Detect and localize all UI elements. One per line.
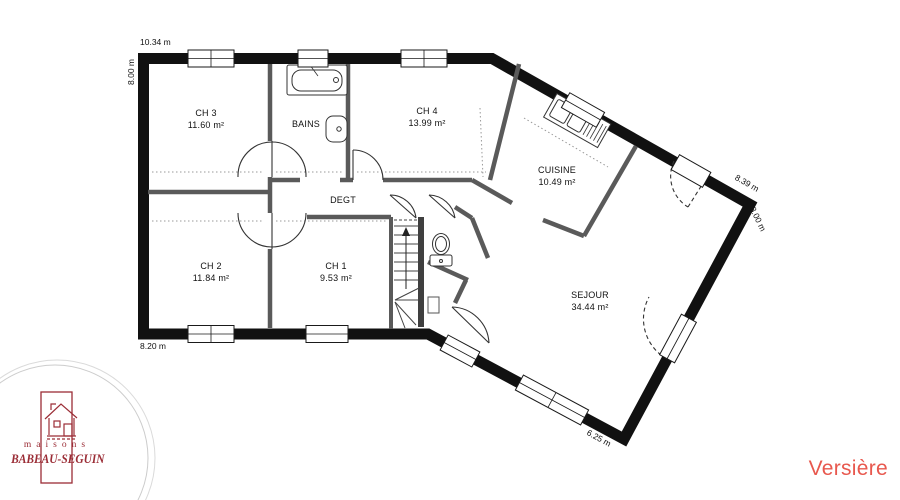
room-area: 11.60 m² — [161, 120, 251, 132]
room-label-degt: DEGT — [298, 195, 388, 207]
room-label-sejour: SEJOUR 34.44 m² — [545, 290, 635, 313]
room-name: BAINS — [261, 119, 351, 131]
room-area: 9.53 m² — [291, 273, 381, 285]
room-label-bains: BAINS — [261, 119, 351, 131]
brand-word: maisons — [10, 440, 104, 450]
window — [401, 50, 447, 67]
window — [188, 326, 234, 343]
room-name: CUISINE — [512, 165, 602, 177]
model-name: Versière — [809, 457, 888, 481]
watermark-circle — [0, 360, 155, 500]
room-area: 34.44 m² — [545, 302, 635, 314]
under-stair-cabinet — [428, 297, 439, 313]
brand-name: BABEAU-SEGUIN — [11, 451, 101, 467]
room-label-cuisine: CUISINE 10.49 m² — [512, 165, 602, 188]
window — [306, 326, 348, 343]
room-name: CH 1 — [291, 261, 381, 273]
dimension-top: 10.34 m — [140, 37, 184, 47]
room-name: SEJOUR — [545, 290, 635, 302]
room-name: CH 2 — [166, 261, 256, 273]
floor-plan-page: CH 3 11.60 m² BAINS CH 4 13.99 m² CUISIN… — [0, 0, 900, 500]
window — [188, 50, 234, 67]
room-area: 10.49 m² — [512, 177, 602, 189]
room-area: 13.99 m² — [382, 118, 472, 130]
room-area: 11.84 m² — [166, 273, 256, 285]
room-label-ch3: CH 3 11.60 m² — [161, 108, 251, 131]
room-name: CH 4 — [382, 106, 472, 118]
room-label-ch2: CH 2 11.84 m² — [166, 261, 256, 284]
window — [298, 50, 328, 67]
room-name: DEGT — [298, 195, 388, 207]
room-label-ch1: CH 1 9.53 m² — [291, 261, 381, 284]
dimension-left: 8.00 m — [126, 50, 136, 94]
dimension-bottom-left: 8.20 m — [140, 341, 184, 351]
brand-logo — [41, 392, 77, 483]
room-label-ch4: CH 4 13.99 m² — [382, 106, 472, 129]
room-name: CH 3 — [161, 108, 251, 120]
